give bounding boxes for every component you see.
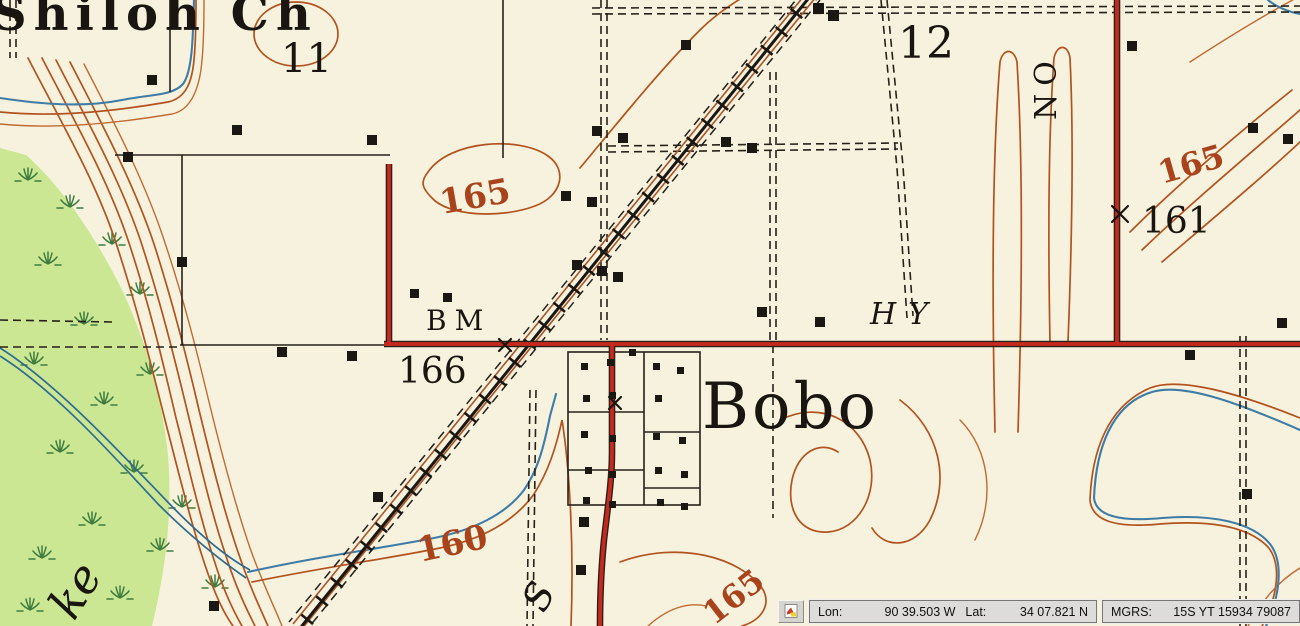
- label-church-partial: Shiloh Ch: [0, 0, 318, 42]
- status-bar: Lon: 90 39.503 W Lat: 34 07.821 N MGRS: …: [778, 600, 1300, 623]
- label-spot-elevation-161: 161: [1142, 201, 1211, 242]
- label-section-11: 11: [281, 36, 332, 82]
- label-town-name: Bobo: [702, 370, 879, 444]
- label-benchmark: BM: [426, 304, 491, 337]
- label-section-12: 12: [898, 18, 954, 69]
- label-benchmark-elevation: 166: [398, 351, 467, 392]
- mgrs-label: MGRS:: [1111, 605, 1152, 619]
- label-highway-no-vertical: NO: [1029, 53, 1064, 120]
- label-highway-hy: HY: [869, 297, 940, 332]
- map-note-icon: [782, 603, 800, 620]
- mgrs-value: 15S YT 15934 79087: [1173, 605, 1291, 619]
- lon-label: Lon:: [818, 605, 842, 619]
- lat-label: Lat:: [965, 605, 986, 619]
- map-canvas[interactable]: Shiloh Ch 11 12 165 165 165 160 BM 166 B…: [0, 0, 1300, 626]
- map-note-button[interactable]: [778, 600, 804, 623]
- lon-value: 90 39.503 W: [885, 605, 956, 619]
- map-viewer-window: Shiloh Ch 11 12 165 165 165 160 BM 166 B…: [0, 0, 1300, 626]
- mgrs-readout-panel: MGRS: 15S YT 15934 79087: [1102, 600, 1300, 623]
- lat-value: 34 07.821 N: [1020, 605, 1088, 619]
- coordinate-readout-panel: Lon: 90 39.503 W Lat: 34 07.821 N: [809, 600, 1097, 623]
